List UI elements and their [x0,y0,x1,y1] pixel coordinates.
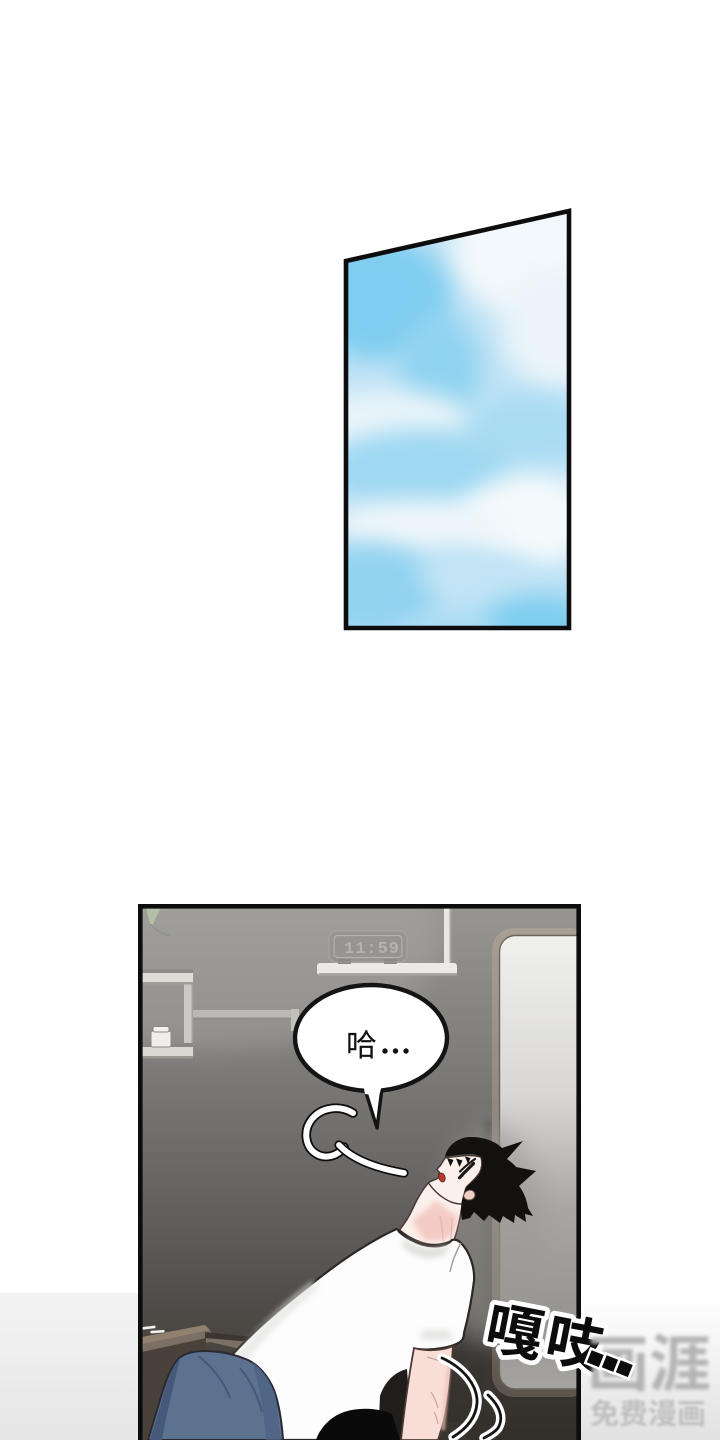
svg-text:11:59: 11:59 [344,940,400,959]
